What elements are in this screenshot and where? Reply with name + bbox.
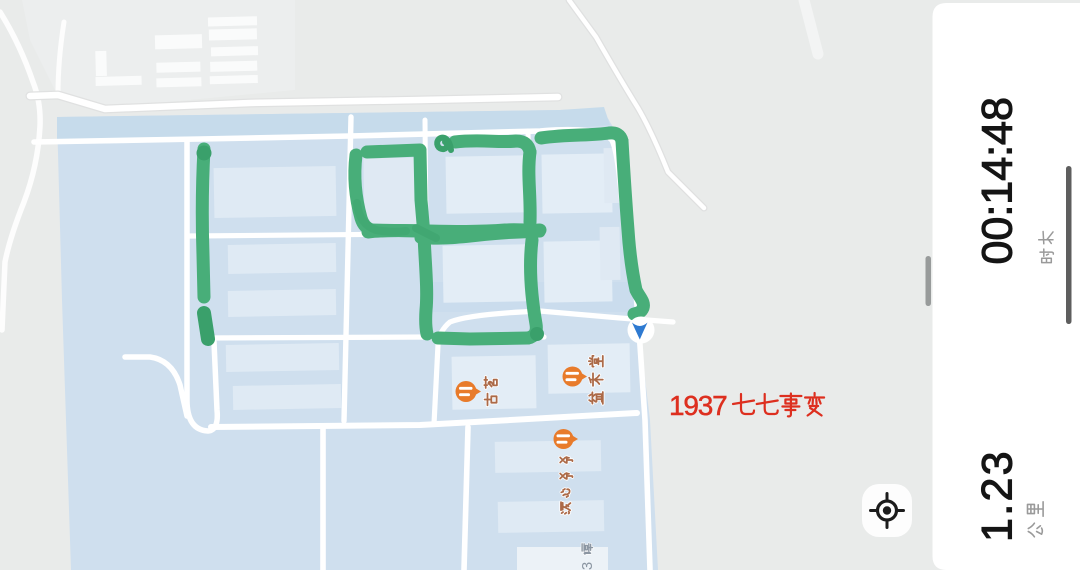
svg-text:00:14:48: 00:14:48 <box>974 97 1022 264</box>
svg-text:3: 3 <box>579 562 596 570</box>
svg-text:1.23: 1.23 <box>974 449 1022 542</box>
svg-text:1937: 1937 <box>669 390 727 421</box>
